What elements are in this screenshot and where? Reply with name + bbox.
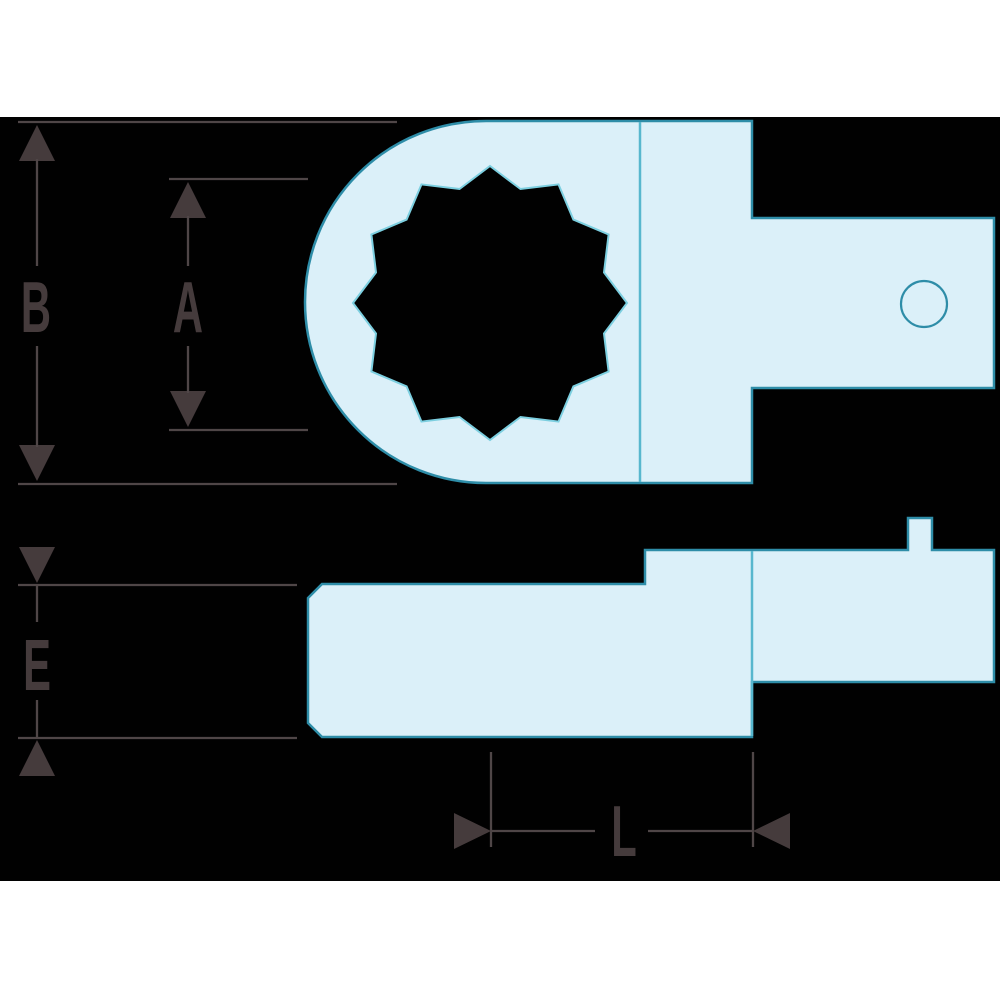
dim-a-label: A xyxy=(173,268,203,348)
dim-l-label: L xyxy=(611,792,637,872)
wrench-dimensional-diagram: B A E L xyxy=(0,0,1000,1000)
dim-b-label: B xyxy=(21,268,51,348)
dim-e-label: E xyxy=(23,626,51,706)
technical-drawing-page: B A E L xyxy=(0,0,1000,1000)
